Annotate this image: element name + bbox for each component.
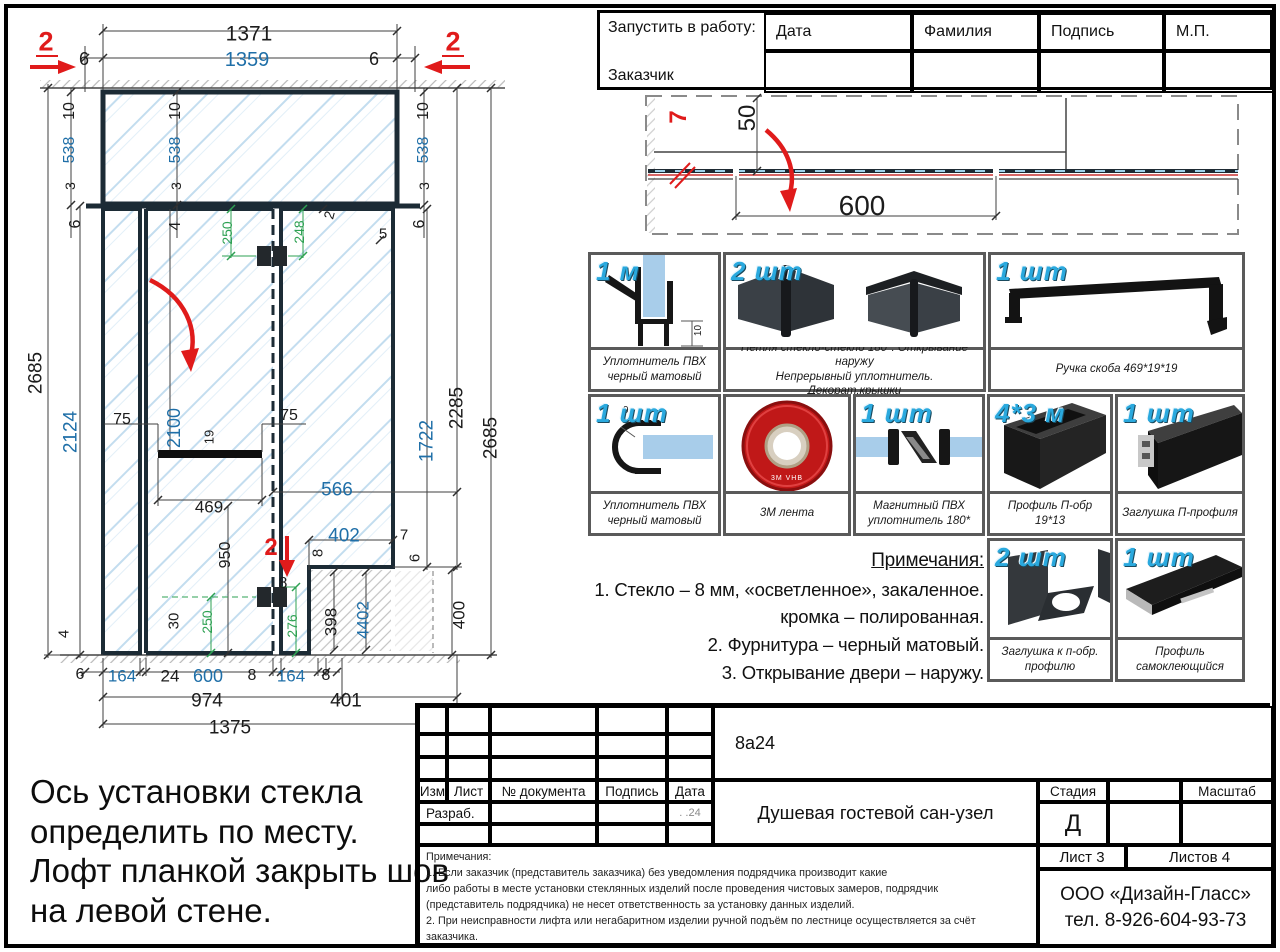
approval-col-date: Дата <box>764 13 912 51</box>
approval-col-stamp: М.П. <box>1164 13 1276 51</box>
sheet-total: Листов 4 <box>1126 845 1273 869</box>
part-cell-3m-tape: 3M VHB 3М лента <box>723 394 851 536</box>
approval-customer-label: Заказчик <box>608 67 674 85</box>
installation-note: Ось установки стекла определить по месту… <box>30 772 450 930</box>
part-caption: Профильсамоклеющийся <box>1118 637 1242 679</box>
qty-badge: 4*3 м <box>995 398 1066 429</box>
part-cell-hinge: 2 шт Петля стекло-стекло 180*. Открывани… <box>723 252 986 392</box>
part-caption: Уплотнитель ПВХчерный матовый <box>591 347 718 389</box>
door-handle <box>158 450 262 458</box>
company-cell: ООО «Дизайн-Гласс» тел. 8-926-604-93-73 <box>1038 869 1273 946</box>
approval-empty-date <box>764 51 912 93</box>
note-line: кромка – полированная. <box>578 603 984 631</box>
part-cell-u-profile-cap: 2 шт Заглушка к п-обр.профилю <box>987 538 1113 682</box>
doc-code: 8а24 <box>713 706 1273 780</box>
qty-badge: 2 шт <box>995 542 1067 573</box>
razrab-label: Разраб. <box>418 802 490 824</box>
approval-empty-name <box>912 51 1039 93</box>
left-fixed-glass <box>103 209 140 653</box>
note-line: 3. Открывание двери – наружу. <box>578 659 984 687</box>
notes-title: Примечания: <box>871 550 984 571</box>
wall-hatch-top <box>40 80 505 88</box>
part-caption: 3М лента <box>726 491 848 533</box>
door-glass <box>146 209 273 653</box>
part-cell-u-profile: 4*3 м Профиль П-обр 19*13 <box>987 394 1113 536</box>
approval-empty-sign <box>1039 51 1164 93</box>
part-cell-self-adhesive-profile: 1 шт Профильсамоклеющийся <box>1115 538 1245 682</box>
col-date: Дата <box>667 780 713 802</box>
part-caption: Заглушка П-профиля <box>1118 491 1242 533</box>
approval-col-name: Фамилия <box>912 13 1039 51</box>
qty-badge: 1 шт <box>596 398 668 429</box>
approval-table: Запустить в работу: Заказчик Дата Фамили… <box>597 10 1273 90</box>
qty-badge: 1 шт <box>1123 398 1195 429</box>
stage-label: Стадия <box>1038 780 1108 802</box>
fine-print: Примечания: 1. Если заказчик (представит… <box>418 845 1038 946</box>
sheet-number: Лист 3 <box>1038 845 1126 869</box>
title-block: Изм Лист № документа Подпись Дата Разраб… <box>415 703 1270 946</box>
company-name: ООО «Дизайн-Гласс» <box>1060 882 1251 908</box>
part-caption: Заглушка к п-обр.профилю <box>990 637 1110 679</box>
qty-badge: 2 шт <box>731 256 803 287</box>
part-caption: Профиль П-обр 19*13 <box>990 491 1110 533</box>
part-cell-end-cap: 1 шт Заглушка П-профиля <box>1115 394 1245 536</box>
col-sign: Подпись <box>597 780 667 802</box>
col-list: Лист <box>447 780 490 802</box>
qty-badge: 1 шт <box>861 398 933 429</box>
qty-badge: 1 м <box>596 256 640 287</box>
part-cell-seal-pvc-1: 1 м 10 Уплотнитель ПВХчерный матовый <box>588 252 721 392</box>
tape-brand-label: 3M VHB <box>771 475 803 482</box>
drawing-sheet: 1371613596221053836105383410538362526852… <box>0 0 1280 952</box>
part-caption: Уплотнитель ПВХчерный матовый <box>591 491 718 533</box>
part-caption: Магнитный ПВХуплотнитель 180* <box>856 491 982 533</box>
plan-detail <box>646 96 1238 234</box>
col-izm: Изм <box>418 780 447 802</box>
company-phone: тел. 8-926-604-93-73 <box>1065 908 1247 934</box>
approval-col-sign: Подпись <box>1039 13 1164 51</box>
part-caption: Ручка скоба 469*19*19 <box>991 347 1242 389</box>
transom-glass <box>103 92 397 204</box>
project-title: Душевая гостевой сан-узел <box>713 780 1038 845</box>
ledge-hatch <box>311 570 391 651</box>
note-line: 1. Стекло – 8 мм, «осветленное», закален… <box>578 576 984 604</box>
floor-hatch <box>60 655 460 663</box>
qty-badge: 1 шт <box>1123 542 1195 573</box>
stage-value: Д <box>1038 802 1108 845</box>
scale-label: Масштаб <box>1181 780 1273 802</box>
date-value: . .24 <box>679 807 700 819</box>
part-cell-seal-pvc-2: 1 шт 9 Уплотнитель ПВХчерный матовый <box>588 394 721 536</box>
approval-empty-stamp <box>1164 51 1276 93</box>
approval-label-cell: Запустить в работу: Заказчик <box>600 13 764 93</box>
approval-request-label: Запустить в работу: <box>608 19 756 37</box>
col-doc: № документа <box>490 780 597 802</box>
part-caption: Петля стекло-стекло 180*. Открывание нар… <box>726 347 983 389</box>
part-cell-magnetic-seal: 1 шт Магнитный ПВХуплотнитель 180* <box>853 394 985 536</box>
notes-block: Примечания: 1. Стекло – 8 мм, «осветленн… <box>578 546 984 687</box>
seal-dim-label: 10 <box>693 325 704 336</box>
part-cell-handle: 1 шт Ручка скоба 469*19*19 <box>988 252 1245 392</box>
qty-badge: 1 шт <box>996 256 1068 287</box>
note-line: 2. Фурнитура – черный матовый. <box>578 631 984 659</box>
